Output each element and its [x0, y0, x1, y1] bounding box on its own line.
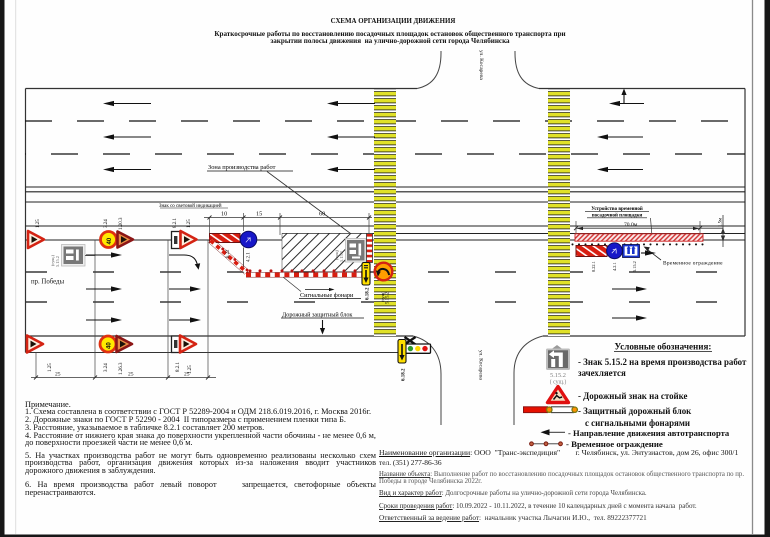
- svg-text:3.24: 3.24: [104, 363, 109, 372]
- svg-text:3.24: 3.24: [104, 219, 109, 228]
- svg-text:8.2.1: 8.2.1: [173, 218, 178, 229]
- svg-text:1.25: 1.25: [36, 219, 41, 228]
- svg-text:( сущ.): ( сущ.): [550, 379, 567, 386]
- svg-text:(сущ): (сущ): [334, 249, 339, 260]
- svg-text:Зона производства работ: Зона производства работ: [208, 164, 276, 171]
- svg-text:(сущ.): (сущ.): [50, 254, 55, 266]
- svg-text:ул. Косарева: ул. Косарева: [478, 50, 484, 80]
- svg-text:5.15.2: 5.15.2: [339, 251, 344, 262]
- svg-text:25: 25: [55, 372, 61, 378]
- svg-text:4.2.1: 4.2.1: [612, 262, 617, 271]
- svg-text:(сущ): (сущ): [380, 291, 385, 302]
- svg-text:1.5м: 1.5м: [719, 218, 724, 227]
- svg-text:ул. Косарева: ул. Косарева: [478, 350, 484, 380]
- svg-text:25: 25: [128, 372, 134, 378]
- svg-text:10: 10: [221, 211, 227, 218]
- svg-text:1.25: 1.25: [48, 363, 53, 372]
- svg-text:8.2.1: 8.2.1: [176, 362, 181, 373]
- svg-text:5.15.2: 5.15.2: [632, 261, 637, 272]
- svg-text:4.2.1: 4.2.1: [247, 252, 252, 262]
- svg-text:40: 40: [107, 237, 113, 244]
- svg-text:60: 60: [319, 211, 325, 218]
- svg-text:1.26.3: 1.26.3: [119, 362, 124, 375]
- svg-text:1.20.3: 1.20.3: [119, 217, 124, 230]
- svg-text:8.22: 8.22: [226, 249, 231, 258]
- svg-text:5.15.2: 5.15.2: [550, 372, 566, 379]
- svg-text:6.18.2: 6.18.2: [402, 368, 407, 381]
- svg-text:6.18.2: 6.18.2: [366, 287, 371, 300]
- svg-text:40: 40: [107, 342, 113, 349]
- svg-text:Временное ограждение: Временное ограждение: [663, 261, 723, 267]
- svg-text:5.15.2: 5.15.2: [386, 291, 391, 304]
- svg-text:5.15.2: 5.15.2: [55, 256, 60, 267]
- svg-text:Дорожный защитный блок: Дорожный защитный блок: [282, 312, 353, 319]
- svg-text:15: 15: [256, 211, 262, 218]
- svg-text:Условные обозначения:: Условные обозначения:: [615, 342, 712, 352]
- svg-text:1.25: 1.25: [188, 365, 193, 374]
- svg-text:Сигнальные фонари: Сигнальные фонари: [300, 292, 354, 299]
- svg-text:1.25: 1.25: [187, 219, 192, 228]
- svg-text:8.22.1: 8.22.1: [591, 261, 596, 272]
- svg-text:70.0м: 70.0м: [624, 222, 638, 228]
- svg-text:пр. Победы: пр. Победы: [31, 279, 64, 286]
